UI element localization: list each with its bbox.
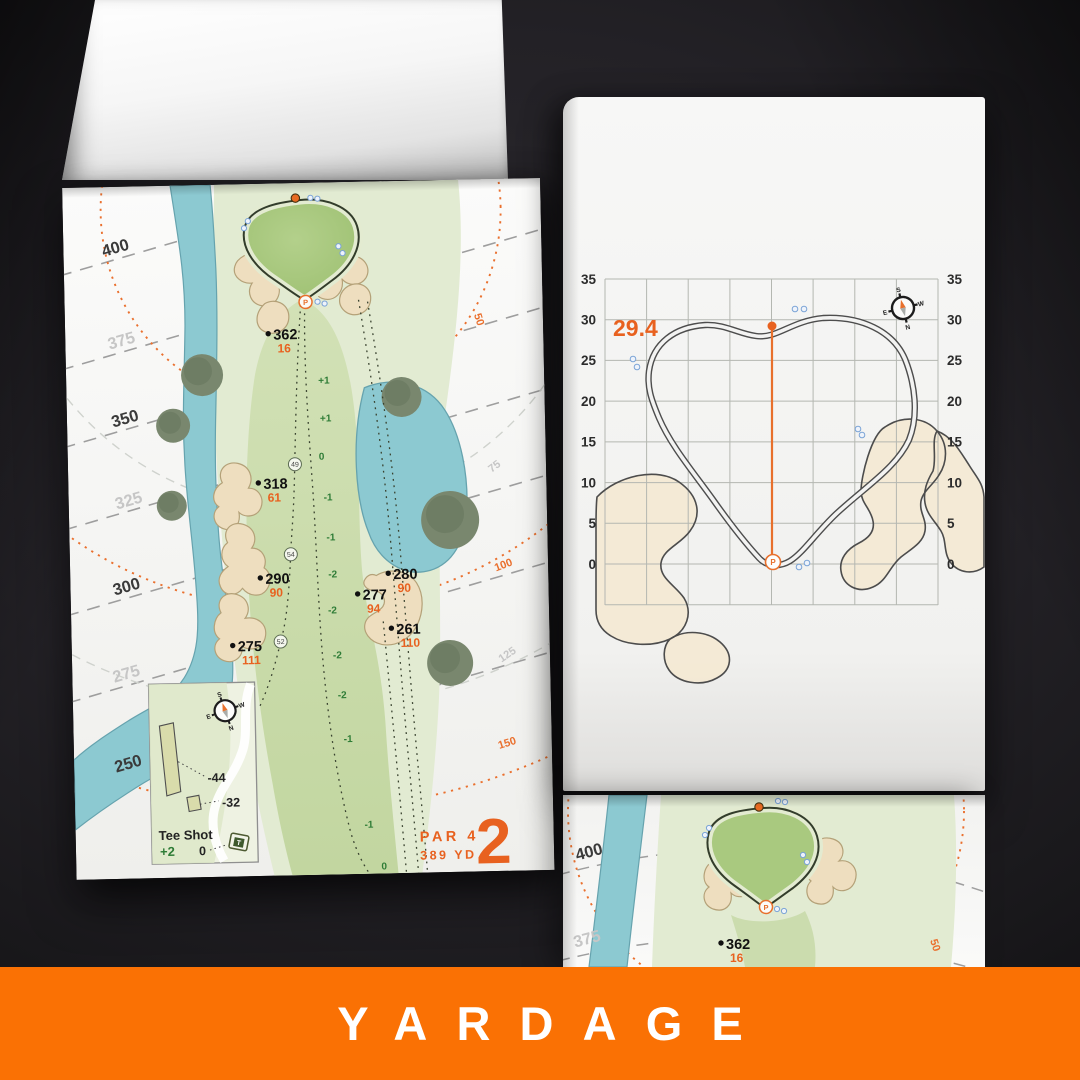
- svg-text:-1: -1: [364, 820, 374, 831]
- svg-text:30: 30: [581, 313, 596, 328]
- svg-text:20: 20: [947, 394, 962, 409]
- svg-text:-2: -2: [338, 690, 348, 701]
- svg-text:94: 94: [367, 601, 381, 615]
- banner-label: YARDAGE: [308, 996, 772, 1051]
- svg-text:61: 61: [267, 490, 281, 504]
- tee-box-forward: [187, 795, 201, 811]
- svg-text:+1: +1: [320, 413, 332, 424]
- svg-text:30: 30: [947, 313, 962, 328]
- svg-text:10: 10: [947, 475, 962, 490]
- hole-map: P 49 54 52 +1 +1 0 -1 -1 -2 -2 -2: [62, 178, 554, 880]
- green-detail-page: 35 30 25 20 15 10 5 0 35 30 25 20 15 10 …: [563, 97, 985, 791]
- pin-letter: P: [303, 298, 308, 307]
- green-entry-pin: P: [299, 295, 312, 308]
- inset-title: Tee Shot: [159, 827, 214, 843]
- product-shot: P 49 54 52 +1 +1 0 -1 -1 -2 -2 -2: [0, 0, 1080, 1080]
- gutter-shade: [563, 795, 577, 967]
- svg-text:+1: +1: [318, 375, 330, 386]
- next-page-preview: P 362 16 400 375 50: [563, 795, 985, 967]
- svg-text:15: 15: [947, 435, 963, 450]
- svg-text:16: 16: [730, 951, 744, 965]
- svg-text:0: 0: [199, 844, 206, 858]
- next-hole-map: P 362 16 400 375 50: [563, 795, 985, 967]
- svg-text:20: 20: [581, 394, 596, 409]
- score-to-par: +2: [160, 844, 175, 859]
- folded-back-page: [62, 0, 508, 180]
- green-entry-pin: P: [760, 901, 773, 914]
- green-depth-value: 29.4: [613, 315, 658, 341]
- svg-text:54: 54: [287, 552, 295, 559]
- svg-text:P: P: [763, 903, 768, 912]
- svg-text:25: 25: [581, 353, 597, 368]
- svg-text:49: 49: [291, 462, 299, 469]
- svg-text:90: 90: [269, 585, 283, 599]
- yards-label: 389 YD: [420, 847, 477, 862]
- svg-text:P: P: [770, 558, 776, 567]
- hole-map-page: P 49 54 52 +1 +1 0 -1 -1 -2 -2 -2: [62, 178, 554, 880]
- pin-dot: [291, 194, 300, 203]
- svg-text:90: 90: [397, 581, 411, 595]
- svg-text:-2: -2: [333, 650, 343, 661]
- gutter-shade: [563, 97, 579, 791]
- svg-text:5: 5: [588, 516, 596, 531]
- svg-text:111: 111: [242, 653, 261, 667]
- svg-text:-2: -2: [328, 605, 338, 616]
- par-label: PAR 4: [420, 828, 479, 845]
- svg-text:5: 5: [947, 516, 955, 531]
- svg-text:-1: -1: [326, 532, 336, 543]
- svg-text:52: 52: [277, 639, 285, 646]
- hole-number: 2: [475, 805, 512, 878]
- green-chart: 35 30 25 20 15 10 5 0 35 30 25 20 15 10 …: [563, 97, 985, 791]
- fold-shadow: [563, 795, 985, 807]
- svg-text:-1: -1: [344, 734, 354, 745]
- svg-text:16: 16: [277, 341, 291, 355]
- tee-shot-inset: S N W E -44 -32 Tee Shot +2 0 T: [149, 682, 259, 864]
- svg-text:0: 0: [588, 557, 596, 572]
- svg-text:25: 25: [947, 353, 963, 368]
- svg-text:-44: -44: [207, 771, 225, 785]
- yardage-banner: YARDAGE: [0, 967, 1080, 1080]
- svg-text:110: 110: [401, 636, 421, 650]
- svg-text:-32: -32: [222, 795, 240, 809]
- svg-text:0: 0: [381, 861, 387, 872]
- svg-text:0: 0: [947, 557, 955, 572]
- svg-text:-2: -2: [328, 569, 338, 580]
- svg-text:35: 35: [947, 272, 963, 287]
- svg-text:15: 15: [581, 435, 597, 450]
- pin-dot: [768, 322, 777, 331]
- tee-marker-icon: T: [229, 833, 249, 851]
- svg-text:10: 10: [581, 475, 596, 490]
- svg-text:0: 0: [319, 452, 325, 463]
- svg-text:-1: -1: [324, 492, 334, 503]
- svg-text:35: 35: [581, 272, 597, 287]
